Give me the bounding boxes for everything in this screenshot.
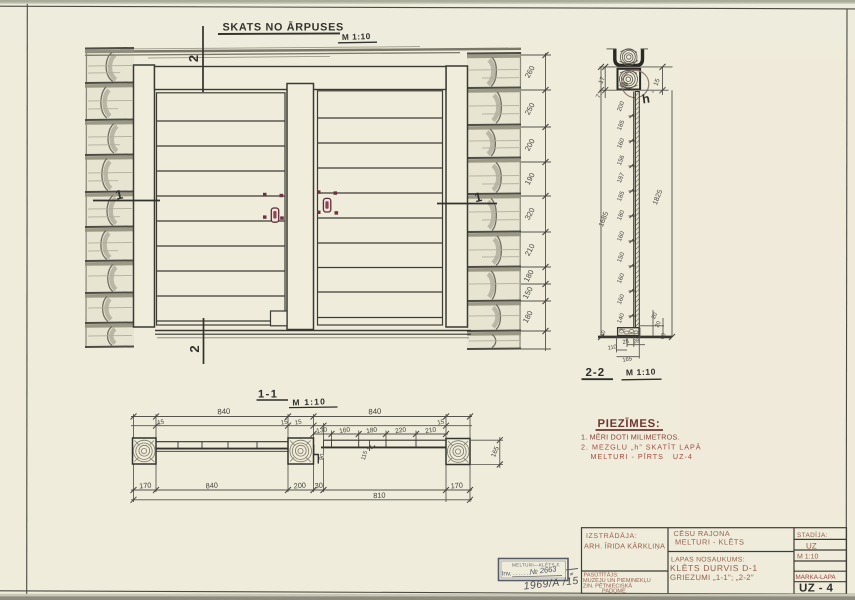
svg-text:UZ - 4: UZ - 4 [799,583,834,595]
svg-text:2-2: 2-2 [586,367,606,379]
svg-text:STADĪJA:: STADĪJA: [797,531,828,539]
svg-text:28: 28 [632,337,640,345]
svg-text:UZ: UZ [806,542,817,551]
svg-text:25: 25 [622,338,630,346]
svg-text:200: 200 [293,480,306,490]
svg-text:1-1: 1-1 [258,389,278,401]
svg-text:30: 30 [314,481,323,491]
svg-text:MELTURI - KLĒTS: MELTURI - KLĒTS [675,538,744,547]
svg-text:ARH. ĪRIDA KĀRKLIŅA: ARH. ĪRIDA KĀRKLIŅA [584,542,665,551]
svg-text:2: 2 [186,55,201,62]
svg-text:SKATS NO ĀRPUSES: SKATS NO ĀRPUSES [223,22,344,34]
svg-text:PIEZĪMES:: PIEZĪMES: [598,417,661,430]
svg-text:MARKA-LAPA: MARKA-LAPA [796,574,837,581]
svg-text:IZSTRĀDĀJA:: IZSTRĀDĀJA: [586,532,637,540]
svg-text:840: 840 [368,407,382,417]
svg-text:840: 840 [205,480,218,490]
svg-text:840: 840 [217,407,231,417]
svg-text:170: 170 [139,480,152,490]
svg-text:Inv.: Inv. [502,571,512,578]
svg-text:M 1:10: M 1:10 [342,31,371,42]
svg-text:2. MEZGLU „h” SKATĪT LAPĀ: 2. MEZGLU „h” SKATĪT LAPĀ [581,443,702,452]
svg-text:KLĒTS DURVIS D-1: KLĒTS DURVIS D-1 [670,563,758,573]
svg-text:M 1:10: M 1:10 [626,366,656,377]
svg-text:1. MĒRI DOTI MILIMETROS.: 1. MĒRI DOTI MILIMETROS. [581,433,680,442]
svg-text:M 1:10: M 1:10 [797,554,819,561]
svg-text:170: 170 [450,480,463,490]
svg-text:PADOME: PADOME [602,588,626,594]
svg-text:810: 810 [373,490,386,500]
svg-text:GRIEZUMI „1-1”; „2-2”: GRIEZUMI „1-1”; „2-2” [670,573,754,582]
svg-text:M 1:10: M 1:10 [292,396,326,407]
svg-text:2: 2 [187,345,202,352]
svg-text:MELTURI - PĪRTS UZ-4: MELTURI - PĪRTS UZ-4 [591,452,693,461]
